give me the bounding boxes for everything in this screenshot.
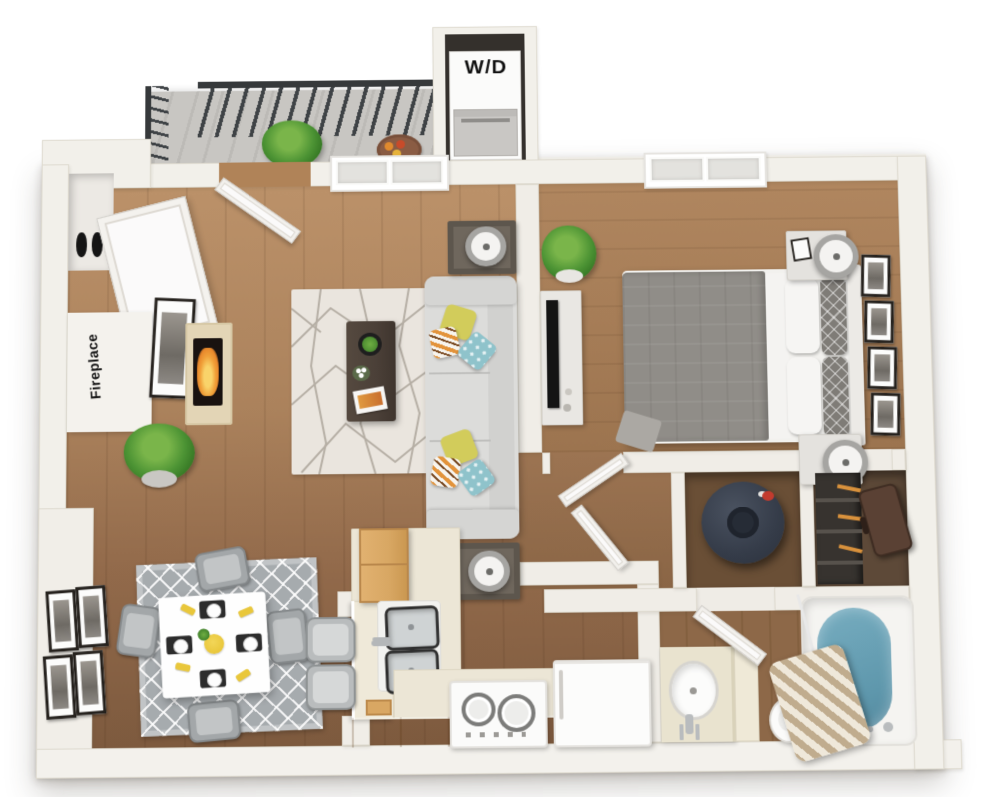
balcony-railing (198, 79, 453, 137)
hanger (837, 484, 861, 492)
fireplace-firebox (193, 338, 223, 406)
napkin (180, 603, 196, 616)
window-pane (706, 156, 761, 181)
sink-faucet (371, 640, 391, 646)
bed (622, 268, 859, 444)
napkin (238, 606, 254, 618)
photo-frame (790, 237, 812, 261)
dining-chair (187, 699, 242, 744)
wall-bedroom-closets-b (891, 449, 905, 471)
fireplace-flame (197, 348, 219, 396)
place-setting (200, 669, 227, 688)
nightstand-lamp (813, 234, 859, 278)
bedroom-wall-frame (867, 346, 897, 389)
plate (173, 638, 189, 654)
chair-seat (195, 707, 233, 736)
stove-controls (466, 732, 526, 738)
art-image (877, 400, 894, 428)
wall-between-closets (799, 471, 816, 586)
art-image (871, 308, 888, 336)
plate (242, 636, 258, 652)
water-heater-ring (727, 507, 759, 539)
tv-dresser (540, 290, 583, 425)
bedroom-window (644, 152, 767, 189)
floor-plan-canvas: W/D (0, 0, 1000, 797)
living-window (330, 155, 449, 192)
floor-plan: W/D (0, 22, 1000, 797)
napkin (235, 668, 251, 682)
closet-shelving (815, 473, 863, 585)
place-setting (166, 635, 193, 654)
decor-item (563, 404, 571, 412)
art-image (82, 595, 101, 638)
art-image (874, 354, 891, 382)
shelf (816, 529, 862, 533)
bed-pillow-white (787, 357, 822, 435)
tub-faucet (883, 722, 893, 732)
wall-bedroom-hall-a (542, 453, 550, 474)
window-pane (336, 160, 389, 185)
upper-cabinet (359, 528, 409, 603)
bed-pillow-patterned (820, 276, 848, 355)
sofa-seat-seam (429, 372, 490, 375)
art-image (50, 665, 69, 710)
bed-pillow-patterned (822, 357, 850, 436)
bedroom-wall-frame (861, 254, 891, 297)
wall-hall-kitchen (520, 561, 659, 586)
bar-stool (306, 664, 356, 710)
dining-wall-frame (45, 589, 79, 652)
throw-pillow-striped (430, 455, 462, 488)
food-item (385, 142, 394, 151)
sofa-armrest (424, 276, 516, 306)
dining-wall-frame (75, 585, 109, 648)
place-setting (199, 600, 226, 619)
chair-seat (202, 553, 242, 585)
laundry-closet (432, 26, 538, 168)
napkin (175, 662, 191, 672)
washer-handle (461, 118, 510, 122)
bowl-greenery (362, 336, 378, 352)
tv (546, 300, 559, 408)
bedroom-wall-frame (864, 300, 894, 343)
drain (408, 624, 414, 630)
hanger (839, 544, 863, 553)
wall-hall-heater-closet (671, 473, 687, 588)
washer-front-panel (453, 109, 518, 157)
art-image (80, 660, 99, 705)
window-pane (390, 160, 443, 185)
dining-table (158, 591, 270, 698)
chair-seat (123, 612, 155, 649)
coffee-table (346, 321, 396, 422)
wall-bedroom-closets (623, 450, 823, 473)
magazine-photo (357, 391, 383, 409)
stove-burner (461, 692, 495, 726)
fridge-handle (559, 670, 564, 720)
counter-box (366, 699, 392, 715)
shoe (76, 232, 87, 257)
decor-item (565, 388, 572, 395)
bed-pillow-white (785, 278, 820, 353)
art-image (158, 312, 187, 385)
sink-basin (384, 605, 439, 651)
washer-dryer-label: W/D (452, 56, 520, 79)
stove-burner (497, 694, 535, 732)
window-pane (650, 157, 705, 182)
sofa-back-cushion (487, 280, 515, 535)
stove (449, 680, 548, 749)
plate (206, 603, 222, 619)
dining-wall-frame (73, 650, 107, 716)
food-item (396, 140, 405, 149)
bathroom-sink (668, 660, 719, 720)
bedroom-wall-frame (871, 393, 901, 436)
magazine (353, 386, 388, 414)
plate (206, 672, 222, 688)
table-lamp (468, 550, 510, 592)
wall-hall-bathroom (544, 588, 697, 613)
fireplace-chase (67, 312, 152, 432)
sink-faucet (685, 714, 693, 734)
wall-living-bedroom (515, 184, 542, 453)
stool-seat (312, 624, 349, 656)
dining-chair (115, 603, 162, 659)
place-setting (236, 633, 263, 652)
chair-seat (272, 617, 303, 655)
stool-seat (312, 671, 349, 703)
art-image (53, 599, 72, 642)
table-lamp (465, 226, 506, 266)
art-image (867, 262, 884, 290)
cabinet-seam (359, 563, 409, 565)
flower-vase (352, 365, 370, 381)
shelf (817, 560, 863, 564)
bar-stool (306, 617, 356, 663)
dining-wall-frame (43, 654, 77, 720)
valve (762, 491, 774, 501)
dining-chair (265, 608, 310, 665)
refrigerator (553, 659, 652, 747)
shelf (816, 498, 862, 502)
sink-drain (690, 687, 697, 694)
hanger (838, 514, 862, 521)
